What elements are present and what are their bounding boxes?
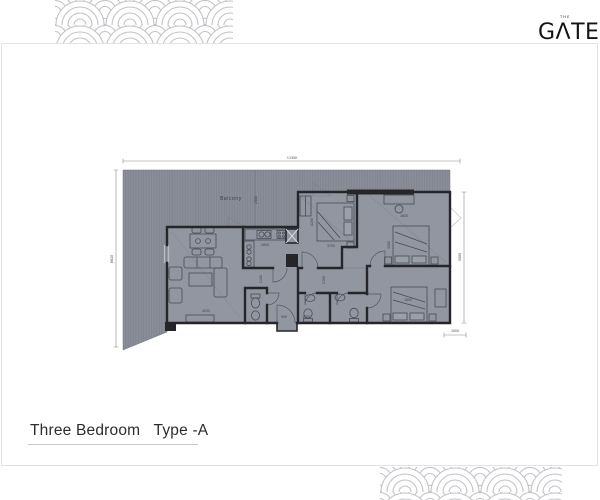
room-label: Balcony: [220, 196, 242, 202]
dimension-label: 900: [281, 315, 287, 319]
dimension-label: 1000: [451, 329, 459, 333]
dimension-label: 11300: [287, 156, 297, 160]
dimension-label: 1800: [404, 298, 412, 302]
page-title: Three Bedroom Type -A: [30, 422, 208, 440]
dimension-label: 4200: [310, 218, 314, 226]
dimension-label: 2300: [254, 196, 258, 204]
dimension-label: 1100: [322, 276, 326, 284]
dimension-label: 8610: [110, 255, 114, 263]
dimension-label: 2600: [261, 243, 269, 247]
dimension-label: 1525: [302, 315, 310, 319]
dimension-label: 3400: [387, 241, 391, 249]
dimension-label: 4250: [202, 309, 210, 313]
room-labels: Balcony: [220, 196, 242, 202]
dimension-label: 5000: [458, 253, 462, 261]
title-underline: [28, 444, 198, 445]
dimension-label: 1100: [259, 275, 263, 283]
dimension-label: 1800: [400, 214, 408, 218]
brochure-page: THE GΛTE: [0, 0, 600, 500]
dimension-label: 3700: [327, 244, 335, 248]
